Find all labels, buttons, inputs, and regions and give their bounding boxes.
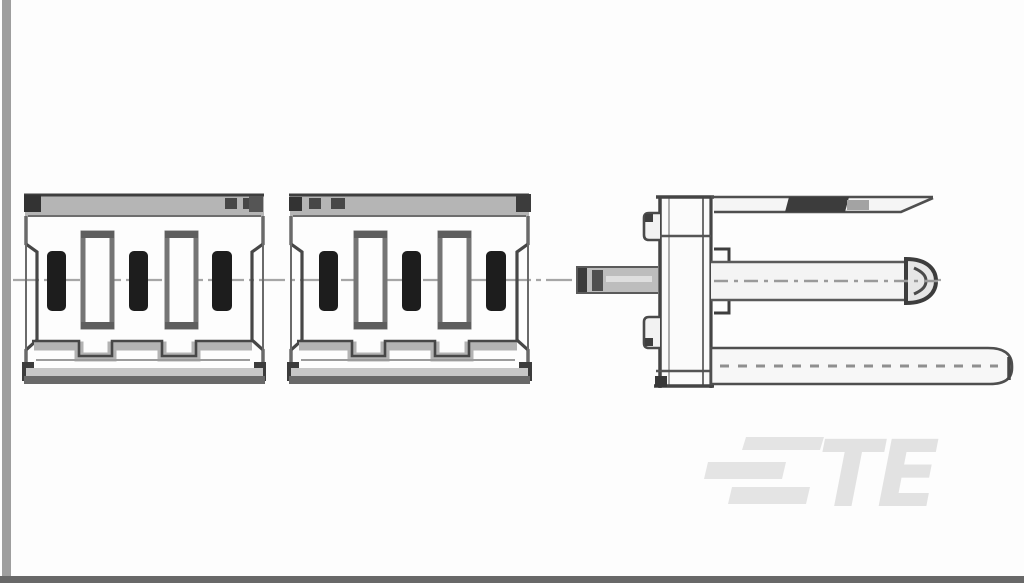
housing-latch-bump: [644, 213, 660, 240]
segment-end-wall: [517, 216, 532, 381]
open-slot: [438, 231, 471, 329]
housing-latch-bump: [644, 317, 660, 348]
top-shaded-bar: [24, 194, 264, 216]
bottom-mount-strip: [289, 360, 530, 384]
te-logo-bars-icon: [704, 437, 824, 504]
bottom-notched-band: [297, 341, 519, 357]
front-view-segment-1: [22, 194, 266, 384]
segment-end-wall: [287, 216, 302, 381]
open-slot: [354, 231, 387, 329]
lower-mounting-rail: [711, 348, 1012, 384]
front-view-segment-2: [287, 194, 532, 384]
left-edge-scan-strip: [2, 0, 11, 583]
center-contact-pin: [711, 249, 940, 313]
open-slot: [165, 231, 198, 329]
segment-end-wall: [22, 216, 37, 381]
te-logo: TE: [704, 421, 939, 528]
connector-technical-drawing: TE: [0, 0, 1024, 583]
side-profile-view: [577, 197, 1012, 388]
top-shaded-bar: [289, 194, 531, 216]
rear-solder-tail: [577, 267, 662, 293]
bottom-notched-band: [32, 341, 254, 357]
scanned-drawing-page: TE: [0, 0, 1024, 583]
upper-retention-blade: [711, 197, 933, 212]
bottom-mount-strip: [24, 360, 265, 384]
bottom-edge-bar: [0, 576, 1024, 583]
te-logo-text: TE: [818, 421, 939, 528]
open-slot: [81, 231, 114, 329]
segment-end-wall: [252, 216, 266, 381]
